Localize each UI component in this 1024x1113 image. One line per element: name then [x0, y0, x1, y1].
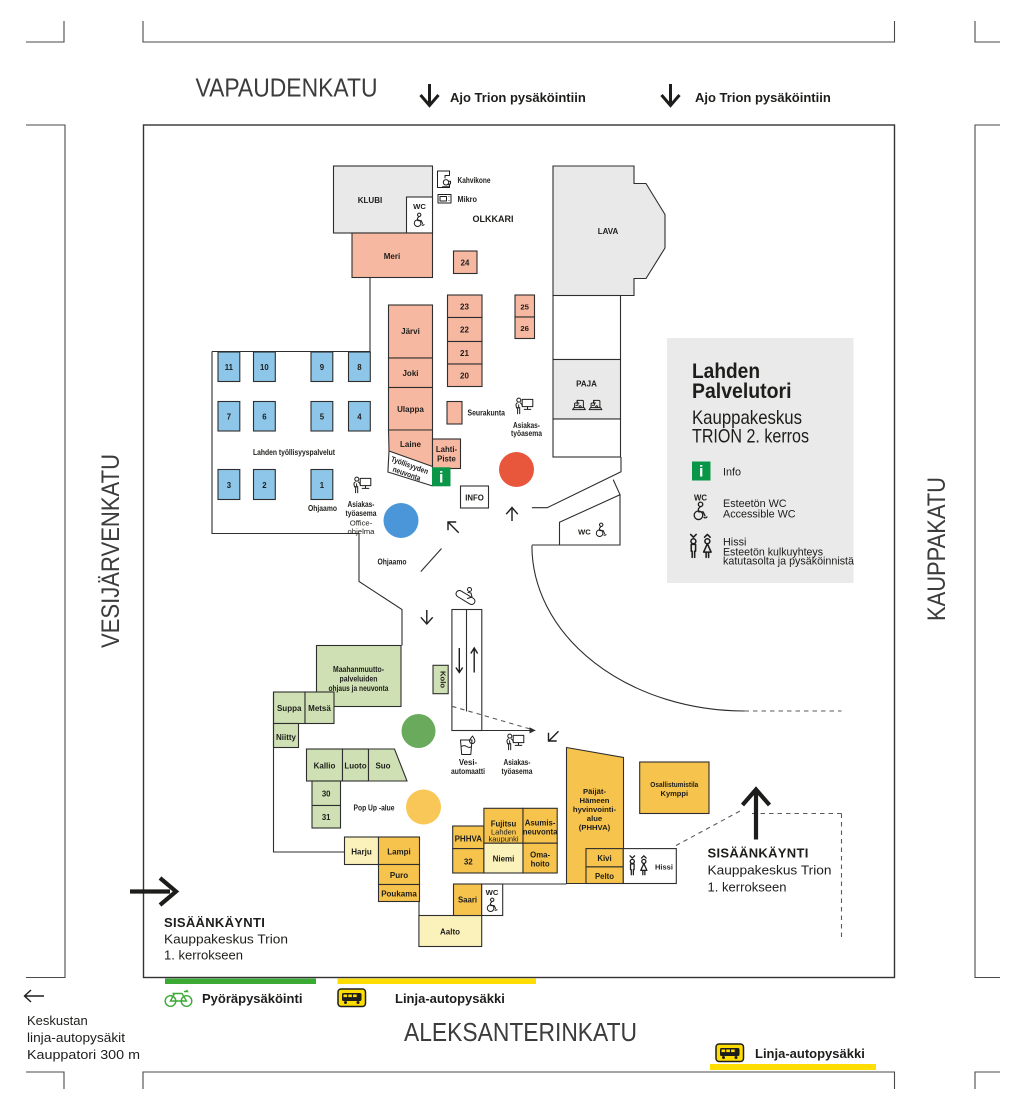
svg-text:9: 9 — [320, 363, 325, 372]
svg-text:Ulappa: Ulappa — [397, 405, 424, 414]
svg-text:PAJA: PAJA — [576, 380, 597, 389]
svg-text:ohjaus ja neuvonta: ohjaus ja neuvonta — [329, 684, 390, 693]
svg-text:1. kerrokseen: 1. kerrokseen — [708, 880, 787, 895]
svg-text:Linja-autopysäkki: Linja-autopysäkki — [755, 1046, 865, 1061]
svg-text:VAPAUDENKATU: VAPAUDENKATU — [196, 73, 378, 103]
svg-text:TRION 2. kerros: TRION 2. kerros — [692, 426, 809, 448]
svg-text:2: 2 — [262, 481, 267, 490]
svg-text:Ohjaamo: Ohjaamo — [378, 557, 407, 567]
svg-text:palveluiden: palveluiden — [340, 675, 378, 684]
svg-text:Niitty: Niitty — [276, 733, 297, 742]
svg-text:hyvinvointi-: hyvinvointi- — [573, 805, 617, 814]
svg-text:Osallistumistila: Osallistumistila — [650, 780, 699, 789]
svg-text:Suppa: Suppa — [277, 704, 302, 713]
svg-text:Lahti-: Lahti- — [436, 445, 458, 454]
svg-text:Kivi: Kivi — [597, 854, 611, 863]
svg-text:4: 4 — [357, 413, 362, 422]
svg-text:Keskustan: Keskustan — [27, 1013, 88, 1028]
svg-text:Harju: Harju — [351, 848, 372, 857]
svg-text:WC: WC — [486, 888, 499, 897]
svg-text:PHHVA: PHHVA — [455, 835, 483, 844]
svg-text:Hämeen: Hämeen — [580, 796, 610, 805]
svg-text:hoito: hoito — [531, 860, 550, 869]
svg-text:Hissi: Hissi — [655, 863, 673, 872]
svg-text:31: 31 — [322, 813, 331, 822]
svg-text:Kauppakeskus Trion: Kauppakeskus Trion — [708, 863, 832, 878]
svg-text:Kallio: Kallio — [314, 762, 336, 771]
svg-text:Palvelutori: Palvelutori — [692, 379, 792, 403]
svg-text:KLUBI: KLUBI — [358, 196, 382, 205]
svg-text:Joki: Joki — [402, 369, 418, 378]
svg-text:Pop Up -alue: Pop Up -alue — [354, 804, 395, 813]
svg-text:Aalto: Aalto — [440, 928, 460, 937]
svg-text:VESIJÄRVENKATU: VESIJÄRVENKATU — [97, 454, 125, 648]
svg-text:10: 10 — [260, 363, 269, 372]
svg-text:25: 25 — [520, 303, 529, 312]
svg-text:Laine: Laine — [400, 440, 421, 449]
svg-text:Kauppakeskus Trion: Kauppakeskus Trion — [164, 932, 288, 947]
svg-text:21: 21 — [460, 349, 469, 358]
svg-text:WC: WC — [413, 202, 426, 211]
svg-text:Vesi-: Vesi- — [459, 758, 478, 767]
svg-text:8: 8 — [357, 363, 362, 372]
svg-text:katutasolta ja pysäköinnistä: katutasolta ja pysäköinnistä — [723, 556, 854, 568]
svg-text:Oma-: Oma- — [530, 851, 550, 860]
svg-text:työasema: työasema — [346, 509, 378, 518]
svg-text:alue: alue — [587, 814, 603, 823]
svg-text:Info: Info — [723, 467, 741, 479]
svg-text:5: 5 — [320, 413, 325, 422]
svg-text:3: 3 — [227, 481, 232, 490]
svg-text:Kahvikone: Kahvikone — [458, 176, 492, 185]
svg-text:1: 1 — [320, 481, 325, 490]
svg-text:Ajo Trion pysäköintiin: Ajo Trion pysäköintiin — [695, 90, 831, 105]
svg-text:Kolo: Kolo — [439, 671, 448, 688]
svg-text:Ajo Trion pysäköintiin: Ajo Trion pysäköintiin — [450, 90, 586, 105]
svg-text:linja-autopysäkit: linja-autopysäkit — [27, 1030, 125, 1045]
svg-text:Asumis-: Asumis- — [525, 819, 556, 828]
svg-text:Meri: Meri — [384, 252, 400, 261]
svg-text:WC: WC — [578, 528, 591, 537]
svg-text:23: 23 — [460, 303, 469, 312]
svg-text:24: 24 — [461, 259, 470, 268]
svg-text:WC: WC — [694, 494, 707, 503]
svg-text:Asiakas-: Asiakas- — [348, 500, 375, 509]
svg-text:Saari: Saari — [458, 896, 477, 905]
svg-text:6: 6 — [262, 413, 267, 422]
svg-text:Kauppatori 300 m: Kauppatori 300 m — [27, 1047, 140, 1062]
svg-text:Lampi: Lampi — [387, 848, 411, 857]
svg-text:(PHHVA): (PHHVA) — [579, 823, 611, 832]
svg-text:neuvonta: neuvonta — [523, 828, 558, 837]
svg-text:20: 20 — [460, 372, 469, 381]
svg-text:työasema: työasema — [511, 429, 543, 438]
svg-text:Suo: Suo — [375, 762, 390, 771]
svg-text:32: 32 — [464, 858, 473, 867]
svg-text:Metsä: Metsä — [308, 704, 331, 713]
svg-text:OLKKARI: OLKKARI — [473, 214, 514, 224]
svg-text:työasema: työasema — [502, 767, 534, 776]
svg-text:Kymppi: Kymppi — [661, 789, 689, 798]
svg-text:Piste: Piste — [437, 455, 456, 464]
svg-text:Lahden työllisyyspalvelut: Lahden työllisyyspalvelut — [253, 447, 335, 457]
svg-text:1. kerrokseen: 1. kerrokseen — [164, 948, 243, 963]
svg-text:Seurakunta: Seurakunta — [468, 409, 506, 418]
svg-text:automaatti: automaatti — [451, 767, 485, 776]
svg-text:Niemi: Niemi — [493, 855, 515, 864]
svg-text:ohjelma: ohjelma — [348, 527, 376, 536]
svg-text:ALEKSANTERINKATU: ALEKSANTERINKATU — [404, 1017, 637, 1047]
svg-text:Linja-autopysäkki: Linja-autopysäkki — [395, 991, 505, 1006]
svg-text:Pelto: Pelto — [595, 872, 614, 881]
svg-text:Maahanmuutto-: Maahanmuutto- — [333, 665, 384, 674]
svg-text:Järvi: Järvi — [401, 327, 420, 336]
svg-text:Puro: Puro — [390, 871, 408, 880]
svg-text:INFO: INFO — [465, 494, 484, 503]
svg-text:22: 22 — [460, 326, 469, 335]
svg-text:Mikro: Mikro — [458, 195, 478, 204]
svg-text:LAVA: LAVA — [598, 227, 619, 236]
svg-text:30: 30 — [322, 790, 331, 799]
svg-text:Ohjaamo: Ohjaamo — [308, 503, 337, 513]
svg-text:SISÄÄNKÄYNTI: SISÄÄNKÄYNTI — [164, 915, 265, 930]
svg-text:26: 26 — [520, 324, 529, 333]
svg-text:KAUPPAKATU: KAUPPAKATU — [923, 477, 951, 621]
svg-text:kaupunki: kaupunki — [488, 835, 518, 844]
svg-text:7: 7 — [227, 413, 231, 422]
svg-text:Päijät-: Päijät- — [583, 787, 607, 796]
svg-text:Poukama: Poukama — [381, 890, 417, 899]
svg-text:Accessible WC: Accessible WC — [723, 509, 796, 521]
svg-text:Luoto: Luoto — [344, 762, 366, 771]
svg-text:Pyöräpysäköinti: Pyöräpysäköinti — [202, 991, 302, 1006]
svg-text:SISÄÄNKÄYNTI: SISÄÄNKÄYNTI — [708, 846, 809, 861]
svg-text:11: 11 — [225, 363, 234, 372]
svg-text:Asiakas-: Asiakas- — [504, 758, 531, 767]
